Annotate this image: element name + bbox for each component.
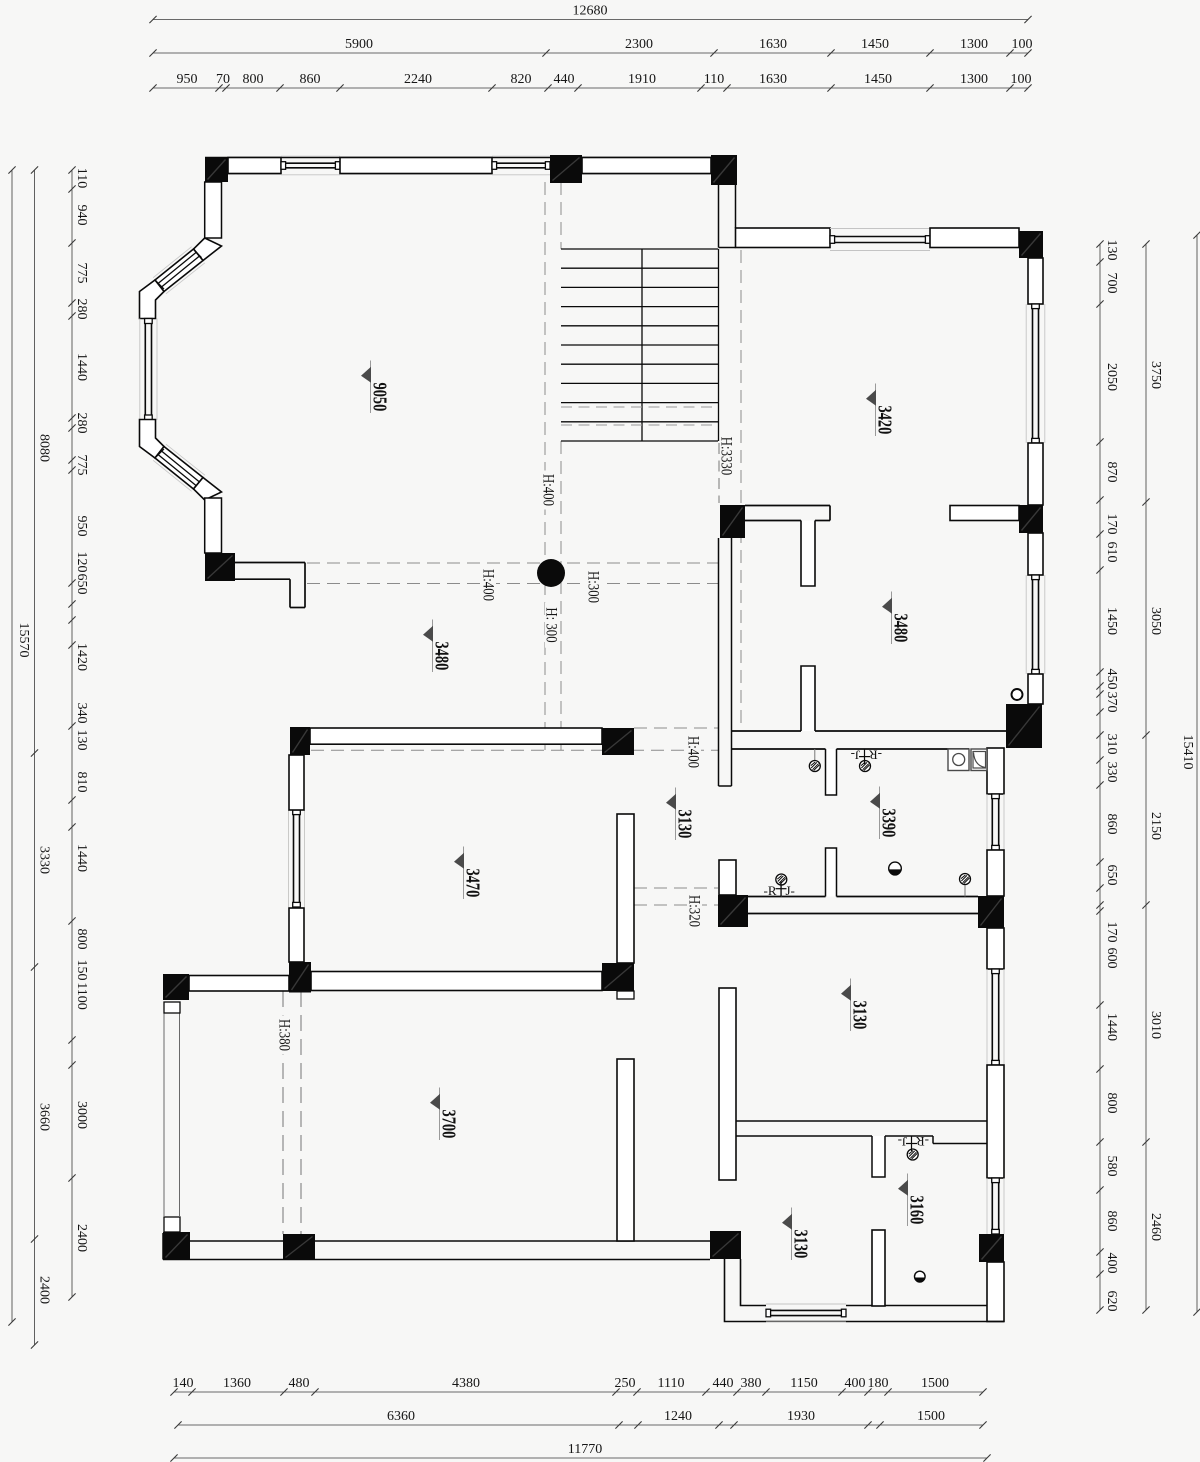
svg-text:620: 620 [1104,1291,1119,1312]
svg-text:4380: 4380 [452,1376,480,1391]
svg-text:1300: 1300 [960,37,988,52]
svg-text:1910: 1910 [628,72,656,87]
svg-text:330: 330 [1104,762,1119,783]
svg-text:3160: 3160 [906,1196,929,1225]
svg-text:H:320: H:320 [685,895,703,927]
svg-text:H:400: H:400 [539,474,557,506]
svg-text:2300: 2300 [625,37,653,52]
svg-text:130: 130 [74,730,89,751]
svg-text:775: 775 [74,455,89,476]
svg-text:860: 860 [1104,1211,1119,1232]
svg-text:1500: 1500 [917,1409,945,1424]
svg-text:800: 800 [243,72,264,87]
svg-text:3050: 3050 [1148,607,1163,635]
svg-text:2400: 2400 [74,1224,89,1252]
svg-text:580: 580 [1104,1156,1119,1177]
svg-text:3000: 3000 [74,1101,89,1129]
svg-text:480: 480 [289,1376,310,1391]
svg-text:700: 700 [1104,273,1119,294]
svg-text:650: 650 [74,574,89,595]
svg-text:650: 650 [1104,865,1119,886]
svg-text:H:3330: H:3330 [717,437,735,475]
svg-text:600: 600 [1104,948,1119,969]
svg-text:1930: 1930 [787,1409,815,1424]
svg-text:400: 400 [845,1376,866,1391]
svg-text:3330: 3330 [37,846,52,874]
svg-text:3130: 3130 [849,1001,872,1030]
svg-text:1630: 1630 [759,72,787,87]
svg-text:-R: -R [764,883,777,898]
svg-text:3700: 3700 [438,1110,461,1139]
svg-text:3660: 3660 [37,1103,52,1131]
svg-text:8080: 8080 [37,434,52,462]
svg-text:1450: 1450 [861,37,889,52]
svg-text:H: 300: H: 300 [542,607,560,642]
svg-text:950: 950 [177,72,198,87]
svg-text:440: 440 [713,1376,734,1391]
svg-text:810: 810 [74,772,89,793]
svg-text:400: 400 [1104,1253,1119,1274]
svg-text:3130: 3130 [790,1230,813,1259]
svg-text:820: 820 [511,72,532,87]
svg-text:1450: 1450 [864,72,892,87]
svg-text:170: 170 [1104,922,1119,943]
svg-text:800: 800 [74,929,89,950]
svg-text:3750: 3750 [1148,361,1163,389]
svg-text:340: 340 [74,703,89,724]
svg-text:6360: 6360 [387,1409,415,1424]
svg-text:120: 120 [74,552,89,573]
svg-text:775: 775 [74,263,89,284]
svg-text:1440: 1440 [74,353,89,381]
svg-text:H:380: H:380 [275,1019,293,1051]
svg-text:1440: 1440 [1104,1013,1119,1041]
svg-text:1150: 1150 [790,1376,817,1391]
svg-text:H:400: H:400 [479,569,497,601]
svg-text:860: 860 [300,72,321,87]
svg-text:1300: 1300 [960,72,988,87]
svg-text:12680: 12680 [573,4,608,19]
svg-text:870: 870 [1104,462,1119,483]
svg-text:2400: 2400 [37,1276,52,1304]
svg-text:70: 70 [216,72,230,87]
svg-text:15410: 15410 [1180,735,1195,770]
svg-text:3480: 3480 [431,642,454,671]
svg-text:-R: -R [916,1134,929,1149]
svg-text:380: 380 [741,1376,762,1391]
svg-text:11770: 11770 [568,1442,602,1457]
svg-text:940: 940 [74,205,89,226]
svg-text:H:400: H:400 [684,736,702,768]
svg-text:J-: J- [851,747,860,762]
svg-text:15570: 15570 [16,623,31,658]
svg-text:150: 150 [74,960,89,981]
svg-text:1240: 1240 [664,1409,692,1424]
svg-text:2050: 2050 [1104,363,1119,391]
svg-text:170: 170 [1104,514,1119,535]
svg-text:1110: 1110 [658,1376,685,1391]
svg-text:5900: 5900 [345,37,373,52]
svg-text:J-: J- [786,883,795,898]
svg-text:450: 450 [1104,669,1119,690]
svg-text:3130: 3130 [674,810,697,839]
svg-text:100: 100 [1012,37,1033,52]
svg-text:2240: 2240 [404,72,432,87]
svg-text:1440: 1440 [74,844,89,872]
svg-text:610: 610 [1104,542,1119,563]
svg-text:440: 440 [554,72,575,87]
svg-text:J-: J- [898,1134,907,1149]
svg-text:860: 860 [1104,814,1119,835]
svg-text:370: 370 [1104,692,1119,713]
svg-text:1100: 1100 [74,982,89,1009]
svg-text:H:300: H:300 [584,571,602,603]
svg-text:-R: -R [869,747,882,762]
svg-text:1500: 1500 [921,1376,949,1391]
svg-text:280: 280 [74,413,89,434]
svg-text:3010: 3010 [1148,1011,1163,1039]
svg-text:3470: 3470 [462,869,485,898]
svg-text:3420: 3420 [874,406,897,435]
svg-text:130: 130 [1104,240,1119,261]
svg-text:3390: 3390 [878,809,901,838]
svg-text:1360: 1360 [223,1376,251,1391]
svg-text:1420: 1420 [74,643,89,671]
svg-text:110: 110 [74,168,89,188]
svg-text:950: 950 [74,516,89,537]
svg-text:100: 100 [1011,72,1032,87]
svg-text:280: 280 [74,299,89,320]
svg-text:110: 110 [704,72,724,87]
svg-text:9050: 9050 [369,383,392,412]
svg-text:1450: 1450 [1104,607,1119,635]
svg-text:140: 140 [173,1376,194,1391]
svg-text:3480: 3480 [890,614,913,643]
svg-text:1630: 1630 [759,37,787,52]
svg-text:2150: 2150 [1148,812,1163,840]
svg-text:310: 310 [1104,734,1119,755]
svg-text:180: 180 [868,1376,889,1391]
svg-text:2460: 2460 [1148,1213,1163,1241]
svg-text:250: 250 [615,1376,636,1391]
svg-text:800: 800 [1104,1093,1119,1114]
